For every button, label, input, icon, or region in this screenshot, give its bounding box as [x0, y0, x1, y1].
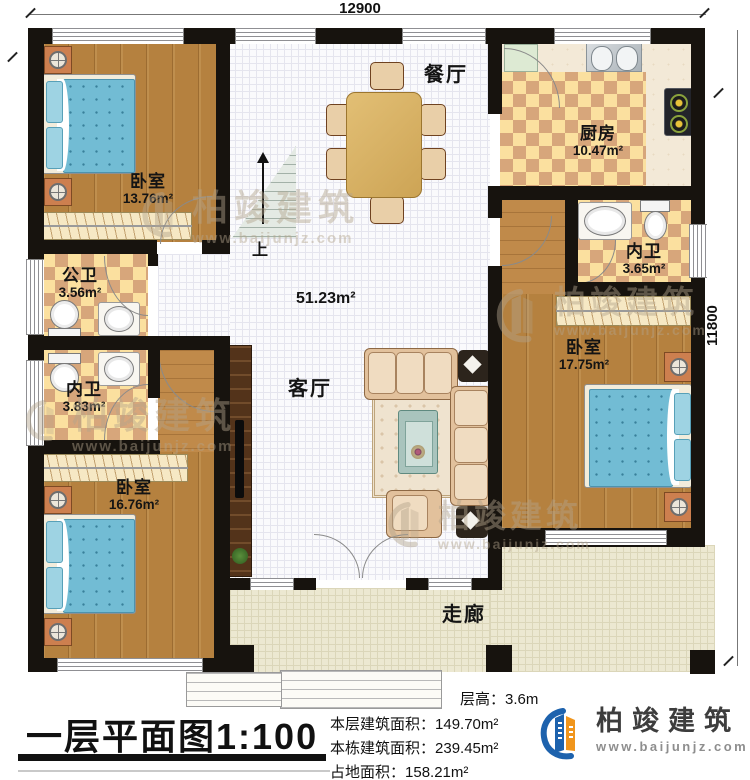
chair-icon [370, 196, 404, 224]
wall [488, 28, 502, 114]
window [57, 658, 203, 672]
page-title-text: 一层平面图 [26, 716, 216, 757]
nightstand-icon [44, 178, 72, 206]
sofa-cushion [392, 495, 428, 531]
pillar [486, 645, 512, 672]
tv-icon [235, 420, 244, 498]
dimension-line-right [737, 30, 738, 666]
sofa-cushion [424, 352, 452, 394]
toilet-icon [644, 211, 667, 240]
stove-icon [664, 88, 694, 136]
wall [148, 350, 160, 398]
room-label-corridor: 走廊 [442, 598, 486, 627]
window [235, 28, 316, 44]
double-bed-icon [584, 384, 692, 488]
wall [228, 578, 252, 590]
wall [406, 578, 428, 590]
wall [28, 336, 230, 350]
dimension-tick-icon [723, 656, 734, 667]
wardrobe-rail [556, 310, 691, 312]
stat-land-area: 占地面积：158.21m² [330, 761, 468, 780]
toilet-icon [50, 300, 79, 329]
window [428, 578, 472, 590]
entry-steps [280, 670, 442, 709]
dimension-tick-icon [7, 52, 18, 63]
wall [488, 186, 705, 200]
dimension-tick-icon [713, 88, 724, 99]
window [250, 578, 294, 590]
page-title: 一层平面图1:100 [26, 708, 318, 760]
chair-icon [420, 104, 446, 136]
window [689, 224, 707, 278]
logo-website: www.baijunjz.com [596, 739, 748, 754]
nightstand-icon [44, 46, 72, 74]
dining-table-icon [346, 92, 422, 198]
page-title-scale: 1:100 [216, 716, 318, 757]
wall [28, 28, 44, 672]
floor-plan: 12900 11800 [0, 0, 750, 780]
title-underline-thin [18, 770, 330, 772]
window [402, 28, 486, 44]
wardrobe-rail [42, 467, 188, 469]
wall [28, 440, 160, 454]
room-label-bedroom-top-left: 卧室 13.76m² [92, 172, 204, 206]
room-label-dining: 餐厅 [424, 58, 468, 87]
dimension-width-label: 12900 [318, 0, 402, 17]
room-label-bath-left: 内卫 3.83m² [46, 380, 122, 414]
up-arrow-icon [262, 162, 264, 224]
wall [148, 254, 158, 266]
side-table-icon [456, 506, 488, 538]
wall [214, 336, 230, 672]
nightstand-icon [664, 352, 694, 382]
dimension-tick-icon [699, 8, 710, 19]
room-label-bath-top-right: 内卫 3.65m² [602, 242, 686, 276]
sofa-cushion [454, 464, 488, 500]
up-arrowhead-icon [257, 152, 269, 163]
room-label-living: 客厅 [288, 372, 332, 401]
logo-mark-icon [538, 706, 588, 760]
stat-building-area: 本栋建筑面积：239.45m² [330, 737, 498, 758]
sofa-cushion [454, 390, 488, 426]
stairs-up-label: 上 [252, 236, 270, 260]
double-bed-icon [42, 514, 136, 614]
room-label-bath-public: 公卫 3.56m² [42, 266, 118, 300]
pillar [228, 645, 254, 672]
title-underline [18, 754, 326, 761]
wall [28, 240, 157, 254]
wall [216, 28, 230, 254]
room-label-bedroom-bottom-left: 卧室 16.76m² [78, 478, 190, 512]
chair-icon [370, 62, 404, 90]
sofa-cushion [368, 352, 396, 394]
corridor-floor [490, 545, 715, 672]
window [554, 28, 651, 44]
kitchen-sink-icon [586, 42, 642, 72]
stat-floor-height: 层高：3.6m [460, 688, 538, 709]
wall [472, 578, 490, 590]
sofa-cushion [454, 427, 488, 463]
wall [294, 578, 316, 590]
entry-steps-side [186, 672, 282, 707]
side-table-icon [458, 350, 490, 382]
nightstand-icon [44, 486, 72, 514]
sink-icon [104, 356, 134, 382]
dimension-height-label: 11800 [704, 276, 721, 346]
living-area-label: 51.23m² [296, 290, 356, 308]
chair-icon [420, 148, 446, 180]
window [545, 530, 667, 545]
nightstand-icon [664, 492, 694, 522]
nightstand-icon [44, 618, 72, 646]
sink-icon [584, 206, 626, 236]
plant-icon [232, 548, 248, 564]
pillar [690, 650, 715, 674]
double-bed-icon [42, 74, 136, 174]
dimension-tick-icon [25, 8, 36, 19]
logo-name: 柏竣建筑 [596, 706, 748, 737]
wall [565, 282, 705, 296]
coffee-table-icon [398, 410, 438, 474]
stat-floor-area: 本层建筑面积：149.70m² [330, 713, 498, 734]
sofa-cushion [396, 352, 424, 394]
window [26, 360, 44, 446]
bath-alcove [158, 254, 230, 338]
window [52, 28, 184, 44]
company-logo: 柏竣建筑 www.baijunjz.com [538, 706, 748, 760]
room-label-bedroom-right: 卧室 17.75m² [528, 338, 640, 372]
room-label-kitchen: 厨房 10.47m² [550, 124, 646, 158]
